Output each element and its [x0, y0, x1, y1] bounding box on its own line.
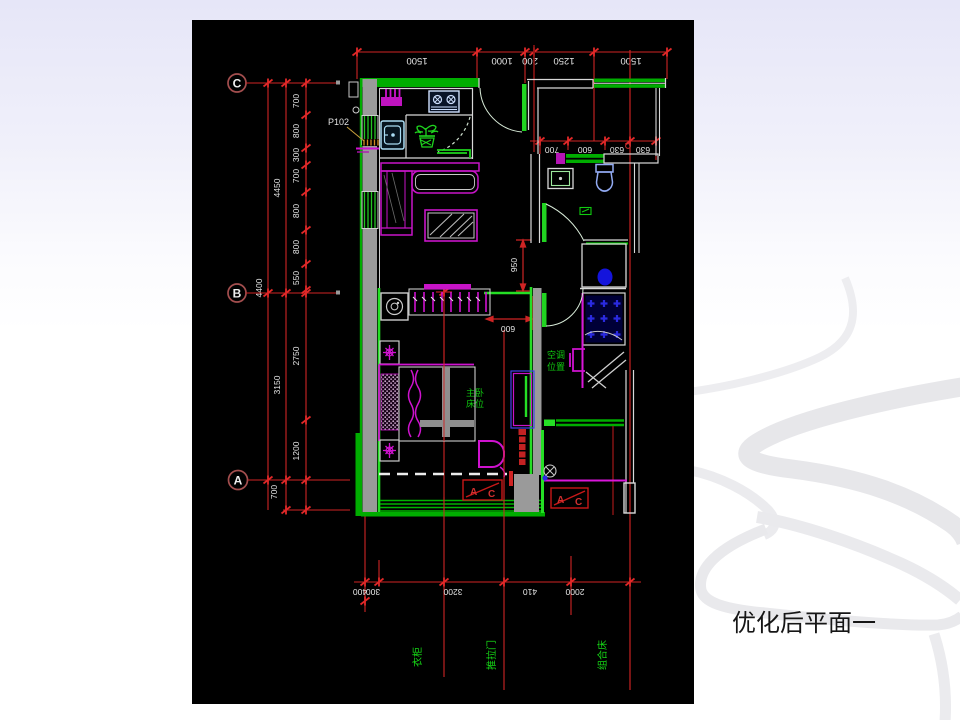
svg-text:1000: 1000: [491, 55, 512, 66]
svg-text:410: 410: [523, 587, 537, 597]
svg-text:1500: 1500: [406, 55, 427, 66]
svg-text:2750: 2750: [291, 346, 301, 365]
svg-text:400: 400: [353, 587, 367, 597]
svg-text:C: C: [575, 497, 582, 508]
svg-text:4450: 4450: [272, 178, 282, 197]
svg-text:位置: 位置: [547, 361, 565, 372]
svg-text:600: 600: [501, 324, 515, 334]
svg-text:A: A: [557, 495, 564, 506]
svg-text:A: A: [234, 474, 243, 488]
svg-text:3150: 3150: [272, 375, 282, 394]
svg-text:B: B: [233, 287, 242, 301]
svg-text:550: 550: [291, 271, 301, 285]
svg-text:200: 200: [522, 55, 538, 66]
svg-text:300: 300: [366, 587, 380, 597]
svg-text:C: C: [233, 77, 242, 91]
svg-text:2000: 2000: [565, 587, 584, 597]
svg-text:主卧: 主卧: [466, 387, 484, 398]
svg-text:衣柜: 衣柜: [411, 647, 424, 667]
svg-text:床位: 床位: [466, 398, 484, 409]
svg-text:300: 300: [291, 148, 301, 162]
svg-text:800: 800: [291, 240, 301, 254]
svg-text:950: 950: [509, 258, 519, 272]
svg-text:推拉门: 推拉门: [485, 640, 498, 670]
svg-text:3200: 3200: [443, 587, 462, 597]
svg-text:P102: P102: [328, 117, 349, 127]
svg-text:700: 700: [291, 169, 301, 183]
svg-text:700: 700: [269, 485, 279, 499]
svg-text:700: 700: [291, 94, 301, 108]
svg-text:1250: 1250: [553, 55, 574, 66]
svg-text:1500: 1500: [620, 55, 641, 66]
svg-text:组合床: 组合床: [596, 640, 609, 670]
svg-text:空调: 空调: [547, 349, 565, 360]
svg-text:1200: 1200: [291, 441, 301, 460]
svg-text:A: A: [470, 487, 477, 498]
svg-text:800: 800: [291, 124, 301, 138]
svg-text:600: 600: [578, 145, 592, 155]
svg-text:800: 800: [291, 204, 301, 218]
svg-text:C: C: [488, 489, 495, 500]
svg-text:4400: 4400: [254, 278, 264, 297]
